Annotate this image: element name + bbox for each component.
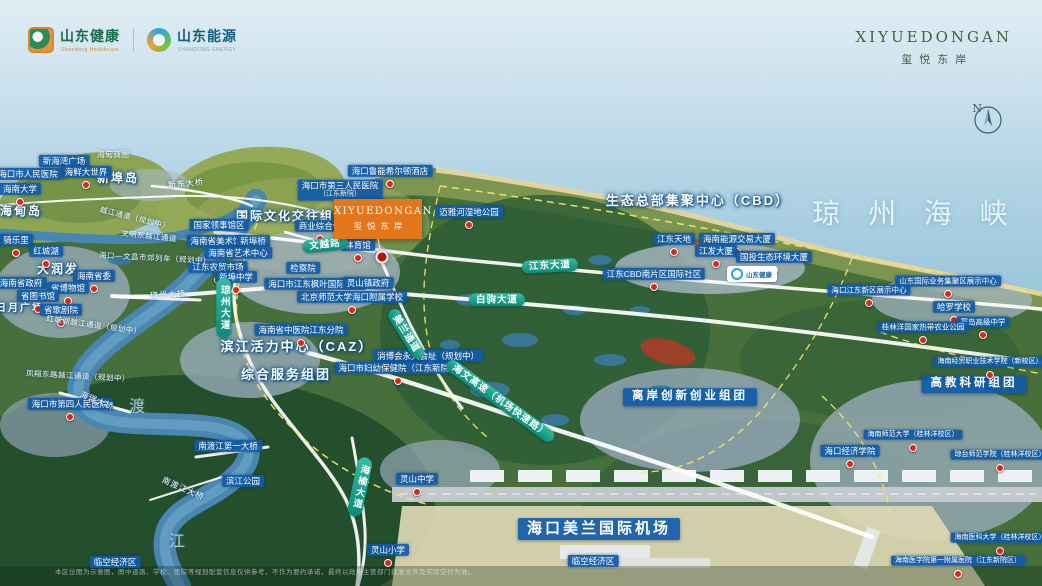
poi-label: 红城湖 [29, 245, 63, 257]
shandong-energy-logo: 山东能源 SHANDONG ENERGY [147, 26, 237, 53]
bridge-label: 新东大桥 [168, 178, 205, 191]
poi-label: 新埠桥 [236, 235, 270, 247]
project-name-cn: 玺悦东岸 [334, 220, 422, 232]
shandong-energy-name: 山东能源 [177, 26, 237, 46]
shandong-energy-sub: SHANDONG ENERGY [177, 47, 237, 53]
compass-icon [972, 102, 1004, 136]
marker-dot [996, 464, 1004, 472]
marker-dot [909, 444, 917, 452]
poi-label: 海口鲁能希尔顿酒店 [348, 165, 433, 177]
poi-label: 琼台师范学院（桂林洋校区） [951, 450, 1042, 460]
planned-label: 海口—文昌市郊列车（规划中） [99, 251, 211, 266]
shandong-health-logo-icon [731, 268, 743, 280]
riverchar-label: 渡 [129, 397, 145, 416]
area-label: 海甸岛 [0, 204, 42, 218]
project-marker-box: XIYUEDONGAN 玺悦东岸 [334, 199, 422, 239]
poi-label: 国投生态环境大厦 [736, 251, 812, 263]
poi-label: 海南医学院第一附属医院（江东新院区） [891, 556, 1025, 566]
poi-label: 海口市人民医院 [0, 168, 62, 180]
area-label: 生态总部集聚中心（CBD） [606, 193, 790, 209]
brand-lockup: XIYUEDONGAN 玺悦东岸 [856, 28, 1013, 67]
marker-dot [944, 290, 952, 298]
area-label: 离岸创新创业组团 [623, 388, 757, 406]
area-label: 高教科研组团 [922, 375, 1027, 393]
shandong-healthcare-logo: 山东健康 Shandong Healthcare [28, 26, 120, 53]
map-labels-layer: 新埠岛海甸岛大润发日月广场国际文化交往组团滨江活力中心（CAZ）综合服务组团生态… [0, 0, 1042, 586]
poi-label: 检察院 [286, 262, 320, 274]
project-name-en: XIYUEDONGAN [334, 206, 422, 217]
road-label: 琼州大道 [216, 278, 231, 338]
poi-label: 海南师范大学（桂林洋校区） [864, 430, 963, 440]
poi-label: 省图书馆 [17, 290, 59, 302]
poi-label: 国家领事馆区 [189, 219, 248, 231]
poi-label: 海口经济学院 [820, 445, 879, 457]
area-label: 综合服务组团 [241, 367, 331, 383]
poi-label: 江东CBD南片区国际社区 [603, 268, 705, 280]
poi-label: 海南省政府 [0, 277, 46, 289]
shandong-energy-logo-icon [147, 28, 171, 52]
map-stage: 新埠岛海甸岛大润发日月广场国际文化交往组团滨江活力中心（CAZ）综合服务组团生态… [0, 0, 1042, 586]
poi-label: 灵山小学 [367, 544, 409, 556]
poi-label: 海南大学 [0, 183, 41, 195]
poi-label: 海鲜大世界 [61, 166, 112, 178]
poi-label: 海南能源交易大厦 [699, 233, 775, 245]
marker-dot [670, 248, 678, 256]
poi-label: 灵山中学 [396, 473, 438, 485]
bridge-label: 南渡江大桥 [160, 475, 205, 502]
area-label: 海口美兰国际机场 [518, 518, 680, 540]
marker-dot [919, 336, 927, 344]
disclaimer-text: 本区位图为示意图，图中道路、学校、医院等规划配套信息仅供参考，不作为要约承诺，最… [55, 566, 767, 576]
marker-dot [386, 180, 394, 188]
brand-name-en: XIYUEDONGAN [856, 28, 1013, 46]
poi-label: 山东国际业务集聚区展示中心 [895, 276, 1001, 287]
poi-label: 海南医科大学（桂林洋校区） [951, 533, 1042, 543]
marker-dot [465, 221, 473, 229]
poi-label: 海南省艺术中心 [204, 247, 272, 259]
marker-dot [413, 488, 421, 496]
poi-label: 海口市第三人民医院（江东新院） [298, 180, 383, 201]
planned-label: 凤翔东路越江通道（规划中） [26, 369, 130, 383]
compass: N [972, 102, 982, 115]
project-location-dot [376, 251, 389, 264]
poi-label: 北京师范大学海口附属学校 [297, 291, 407, 303]
marker-dot [90, 285, 98, 293]
marker-dot [712, 260, 720, 268]
header-logos: 山东健康 Shandong Healthcare 山东能源 SHANDONG E… [28, 26, 237, 53]
marker-dot [348, 306, 356, 314]
marker-dot [12, 249, 20, 257]
marker-dot [865, 299, 873, 307]
marker-dot [986, 371, 994, 379]
brand-name-cn: 玺悦东岸 [856, 51, 1013, 67]
shandong-healthcare-sub: Shandong Healthcare [60, 47, 120, 53]
poi-label: 海南省中医院江东分院 [254, 324, 347, 336]
bridge-label: 琼州大桥 [150, 289, 186, 300]
poi-label: 消博会永久会址（规划中） [373, 350, 483, 362]
marker-dot [394, 377, 402, 385]
marker-dot [846, 460, 854, 468]
planned-label: 越江通道（规划中） [99, 205, 171, 231]
poi-label: 江发大厦 [695, 245, 737, 257]
road-label: 海文高速（机场快速路） [444, 358, 557, 445]
marker-dot [232, 286, 240, 294]
riverchar-label: 江 [169, 532, 185, 551]
poi-label: 滨江公园 [222, 475, 264, 487]
poi-label: 南渡江第一大桥 [194, 440, 262, 452]
partner-badge-label: 山东健康 [746, 269, 772, 279]
poi-label: 灵山镇政府 [343, 277, 394, 289]
marker-dot [954, 570, 962, 578]
marker-dot [979, 331, 987, 339]
road-label: 江东大道 [522, 258, 579, 274]
marker-dot [650, 283, 658, 291]
minor-label: 海甸商圈 [97, 150, 129, 160]
poi-label: 桂林洋国家热带农业公园 [878, 322, 969, 333]
marker-dot [16, 198, 24, 206]
partner-badge: 山东健康 [727, 266, 777, 282]
shandong-healthcare-logo-icon [28, 27, 54, 53]
marker-dot [996, 547, 1004, 555]
poi-label: 迈雅河湿地公园 [435, 206, 503, 218]
poi-label: 海南经贸职业技术学院（新校区） [934, 357, 1042, 367]
logo-divider [133, 28, 134, 52]
water-label: 琼 州 海 峡 [812, 197, 1017, 231]
marker-dot [66, 413, 74, 421]
poi-label: 哈罗学校 [933, 301, 975, 313]
marker-dot [82, 181, 90, 189]
marker-dot [354, 254, 362, 262]
marker-dot [297, 339, 305, 347]
poi-label: 海南省委 [73, 270, 115, 282]
shandong-healthcare-name: 山东健康 [60, 26, 120, 46]
poi-label: 骑乐里 [0, 234, 33, 246]
poi-label: 江东天地 [653, 233, 695, 245]
poi-label: 海口市妇幼保健院（江东新院） [334, 362, 461, 374]
poi-label: 海口江东新区展示中心 [828, 285, 911, 296]
marker-dot [42, 260, 50, 268]
road-label: 海榆大道 [346, 456, 374, 518]
road-label: 白驹大道 [469, 293, 525, 306]
